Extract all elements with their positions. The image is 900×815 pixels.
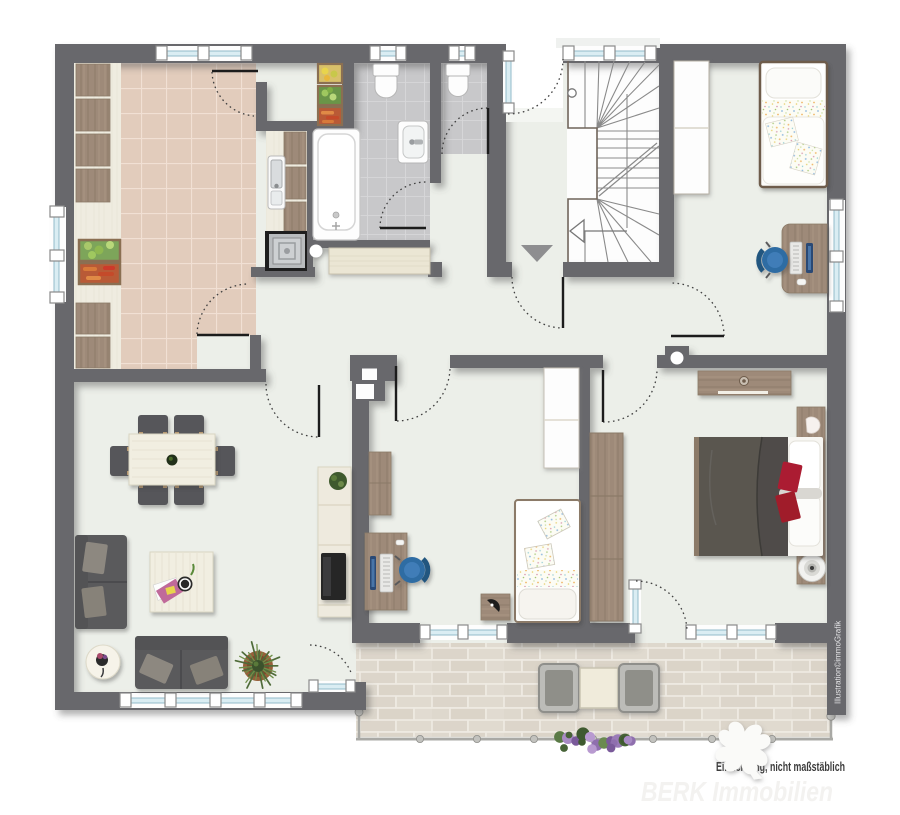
svg-text:BERK Immobilien: BERK Immobilien	[641, 776, 833, 807]
svg-text:Illustration©immoGrafik: Illustration©immoGrafik	[834, 620, 843, 704]
